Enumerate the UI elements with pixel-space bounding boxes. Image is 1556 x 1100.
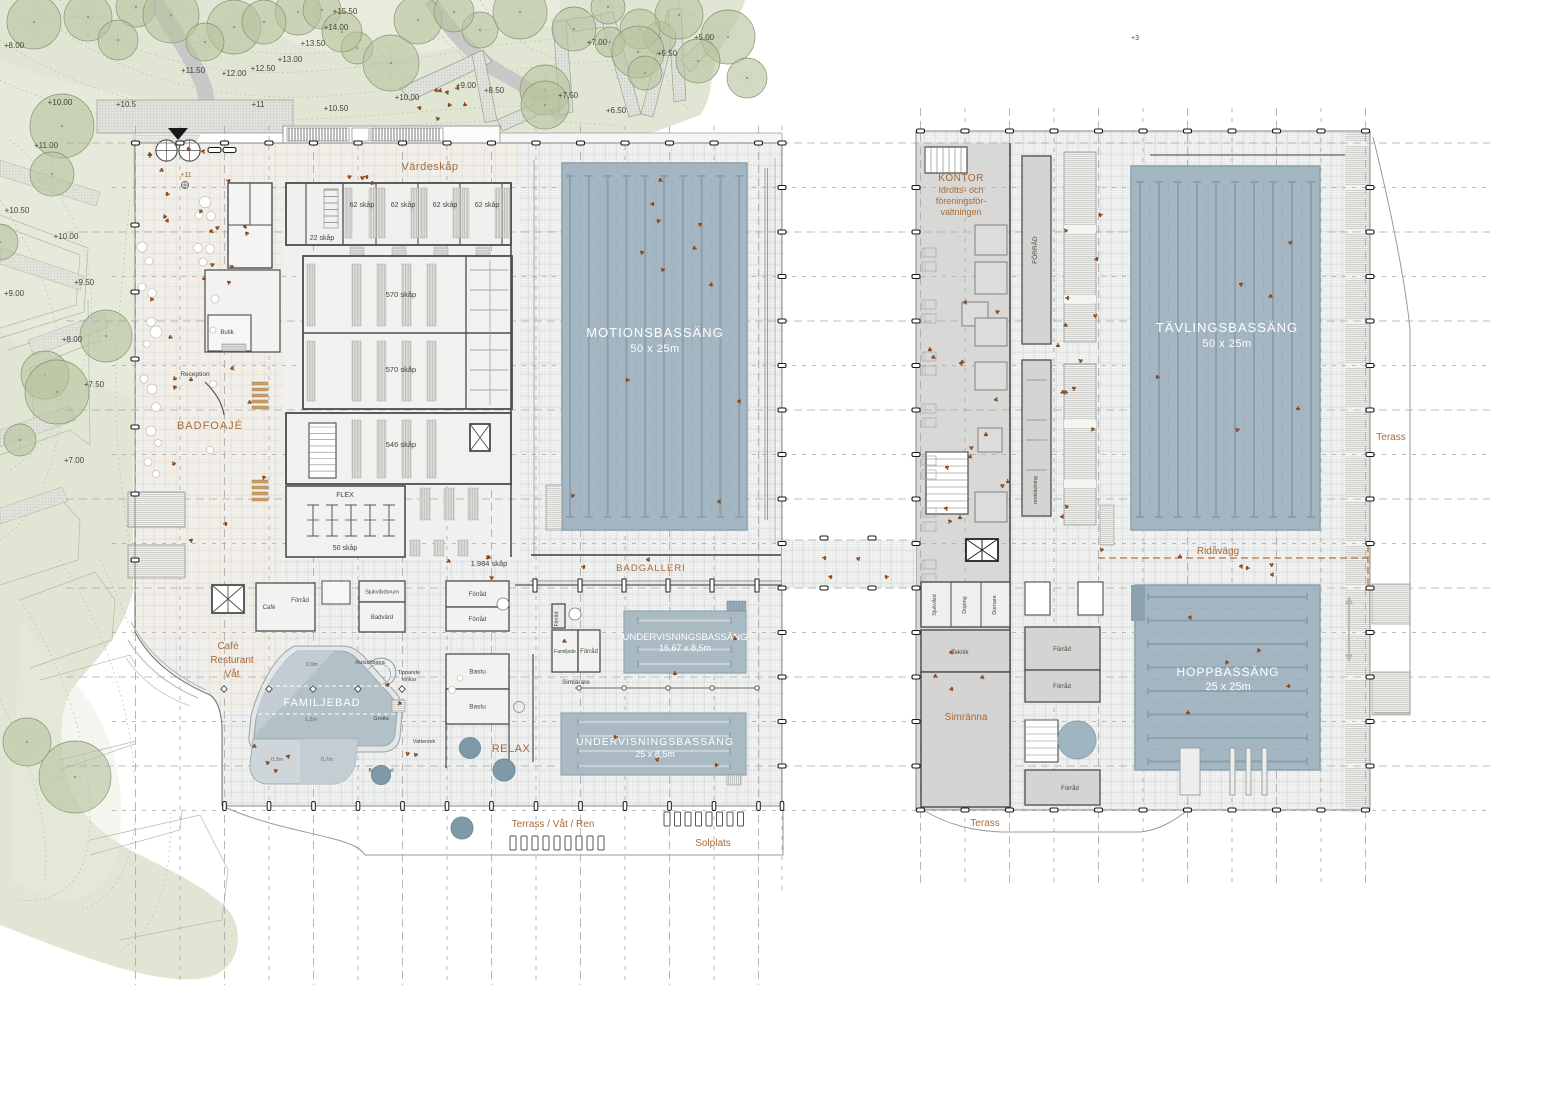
svg-text:Rutschbana: Rutschbana (355, 660, 385, 666)
svg-text:+7.50: +7.50 (84, 380, 105, 389)
svg-text:22 skåp: 22 skåp (310, 234, 335, 242)
svg-text:1,2m: 1,2m (305, 717, 318, 723)
svg-text:62 skåp: 62 skåp (433, 201, 458, 209)
svg-text:BADGALLERI: BADGALLERI (616, 563, 686, 574)
svg-text:Badvärd: Badvärd (371, 615, 393, 621)
svg-text:Doping: Doping (962, 596, 968, 613)
svg-text:Sjukvårdsrum: Sjukvårdsrum (365, 589, 399, 596)
svg-text:+5.50: +5.50 (657, 49, 678, 58)
svg-text:+11: +11 (252, 100, 266, 109)
svg-text:+3: +3 (1131, 35, 1139, 42)
svg-text:50 skåp: 50 skåp (333, 544, 358, 552)
svg-text:+6.50: +6.50 (606, 106, 627, 115)
svg-text:Terrass / Våt / Ren: Terrass / Våt / Ren (512, 818, 595, 830)
svg-text:Förråd: Förråd (469, 591, 487, 598)
svg-text:Grotta: Grotta (373, 716, 389, 722)
svg-text:0,9m: 0,9m (306, 662, 319, 668)
svg-text:+7.50: +7.50 (558, 91, 579, 100)
svg-text:570 skåp: 570 skåp (386, 365, 416, 374)
svg-text:546 skåp: 546 skåp (386, 440, 416, 449)
svg-text:UNDERVISNINGSBASSÄNG: UNDERVISNINGSBASSÄNG (623, 632, 748, 643)
svg-text:KONTOR: KONTOR (938, 173, 984, 184)
svg-text:BADFOAJÉ: BADFOAJÉ (177, 419, 243, 432)
svg-text:1.984 skåp: 1.984 skåp (471, 559, 508, 568)
svg-text:FAMILJEBAD: FAMILJEBAD (283, 697, 360, 709)
svg-text:Förråd: Förråd (1053, 683, 1071, 690)
svg-text:UNDERVISNINGSBASSÄNG: UNDERVISNINGSBASSÄNG (576, 736, 734, 748)
svg-text:Våt: Våt (224, 668, 239, 680)
svg-text:0,7m: 0,7m (321, 757, 334, 763)
svg-text:Domare: Domare (992, 595, 998, 615)
svg-text:föreningsför-: föreningsför- (936, 196, 987, 206)
svg-text:50 x 25m: 50 x 25m (1202, 338, 1251, 350)
svg-text:+5.00: +5.00 (694, 33, 715, 42)
svg-text:570 skåp: 570 skåp (386, 290, 416, 299)
svg-text:MOTIONSBASSÄNG: MOTIONSBASSÄNG (586, 325, 724, 340)
svg-text:+10.5: +10.5 (116, 100, 137, 109)
svg-text:Café: Café (263, 605, 276, 611)
svg-text:Förråd: Förråd (580, 648, 598, 655)
svg-text:Familjede: Familjede (554, 649, 576, 655)
svg-text:62 skåp: 62 skåp (475, 201, 500, 209)
svg-text:Idrotts- och: Idrotts- och (938, 185, 983, 195)
svg-text:+10.00: +10.00 (54, 232, 79, 241)
svg-text:25 x 8,5m: 25 x 8,5m (635, 749, 675, 759)
svg-text:Förråd: Förråd (1053, 646, 1071, 653)
svg-text:+7.00: +7.00 (587, 38, 608, 47)
svg-text:Terass: Terass (1376, 432, 1405, 443)
svg-text:+12.50: +12.50 (251, 64, 276, 73)
svg-text:FÖRRÅD: FÖRRÅD (1030, 236, 1039, 264)
svg-text:Förråd: Förråd (553, 611, 560, 626)
svg-text:Resturant: Resturant (210, 655, 254, 666)
svg-text:Solplats: Solplats (695, 838, 731, 849)
svg-text:Förråd: Förråd (291, 597, 309, 604)
svg-text:+12.00: +12.00 (222, 69, 247, 78)
svg-text:Sjukvård: Sjukvård (931, 594, 938, 615)
svg-text:Reception: Reception (180, 371, 210, 378)
svg-text:+9.00: +9.00 (4, 289, 25, 298)
svg-text:+10.50: +10.50 (5, 206, 30, 215)
svg-text:+10.00: +10.00 (395, 93, 420, 102)
svg-text:+8.50: +8.50 (484, 86, 505, 95)
svg-text:valtningen: valtningen (940, 207, 981, 217)
svg-text:RELAX: RELAX (492, 743, 531, 755)
svg-text:+11.00: +11.00 (34, 141, 59, 150)
svg-text:+13.00: +13.00 (278, 55, 303, 64)
svg-text:Terass: Terass (970, 818, 999, 829)
svg-text:62 skåp: 62 skåp (350, 201, 375, 209)
svg-text:FLEX: FLEX (336, 492, 354, 499)
svg-text:Bastu: Bastu (469, 669, 486, 676)
svg-text:HOPPBASSÄNG: HOPPBASSÄNG (1176, 665, 1279, 679)
svg-text:TÄVLINGSBASSÄNG: TÄVLINGSBASSÄNG (1156, 320, 1298, 335)
svg-text:Bastu: Bastu (469, 704, 486, 711)
svg-text:Tippande: Tippande (398, 670, 421, 676)
svg-text:+8.00: +8.00 (4, 41, 25, 50)
svg-text:hinkar: hinkar (402, 677, 417, 683)
svg-text:16,67 x 8,5m: 16,67 x 8,5m (659, 643, 711, 653)
svg-text:Ridåvägg: Ridåvägg (1197, 545, 1239, 557)
svg-text:omklädning: omklädning (1033, 476, 1039, 504)
svg-text:+15.50: +15.50 (333, 7, 358, 16)
svg-text:25 x 25m: 25 x 25m (1205, 681, 1250, 693)
svg-text:+13.50: +13.50 (301, 39, 326, 48)
svg-text:+10.50: +10.50 (324, 104, 349, 113)
svg-text:62 skåp: 62 skåp (391, 201, 416, 209)
svg-text:Förråd: Förråd (1061, 785, 1079, 792)
svg-text:+11.50: +11.50 (181, 66, 206, 75)
svg-text:Simlärare: Simlärare (562, 679, 590, 686)
svg-text:+11: +11 (180, 172, 191, 179)
svg-text:Simränna: Simränna (945, 712, 988, 723)
svg-text:Vattenlek: Vattenlek (413, 739, 436, 745)
svg-text:+9.50: +9.50 (74, 278, 95, 287)
svg-text:50 x 25m: 50 x 25m (630, 343, 679, 355)
svg-text:Värdeskåp: Värdeskåp (401, 161, 458, 173)
svg-text:+10.00: +10.00 (48, 98, 73, 107)
svg-text:+7.00: +7.00 (64, 456, 85, 465)
svg-text:+14.00: +14.00 (324, 23, 349, 32)
svg-text:Café: Café (217, 641, 239, 652)
svg-text:+8.00: +8.00 (62, 335, 83, 344)
svg-text:Förråd: Förråd (469, 616, 487, 623)
svg-text:0,3m: 0,3m (271, 757, 284, 763)
svg-text:Butik: Butik (220, 330, 234, 336)
svg-text:Teknik: Teknik (951, 650, 969, 656)
